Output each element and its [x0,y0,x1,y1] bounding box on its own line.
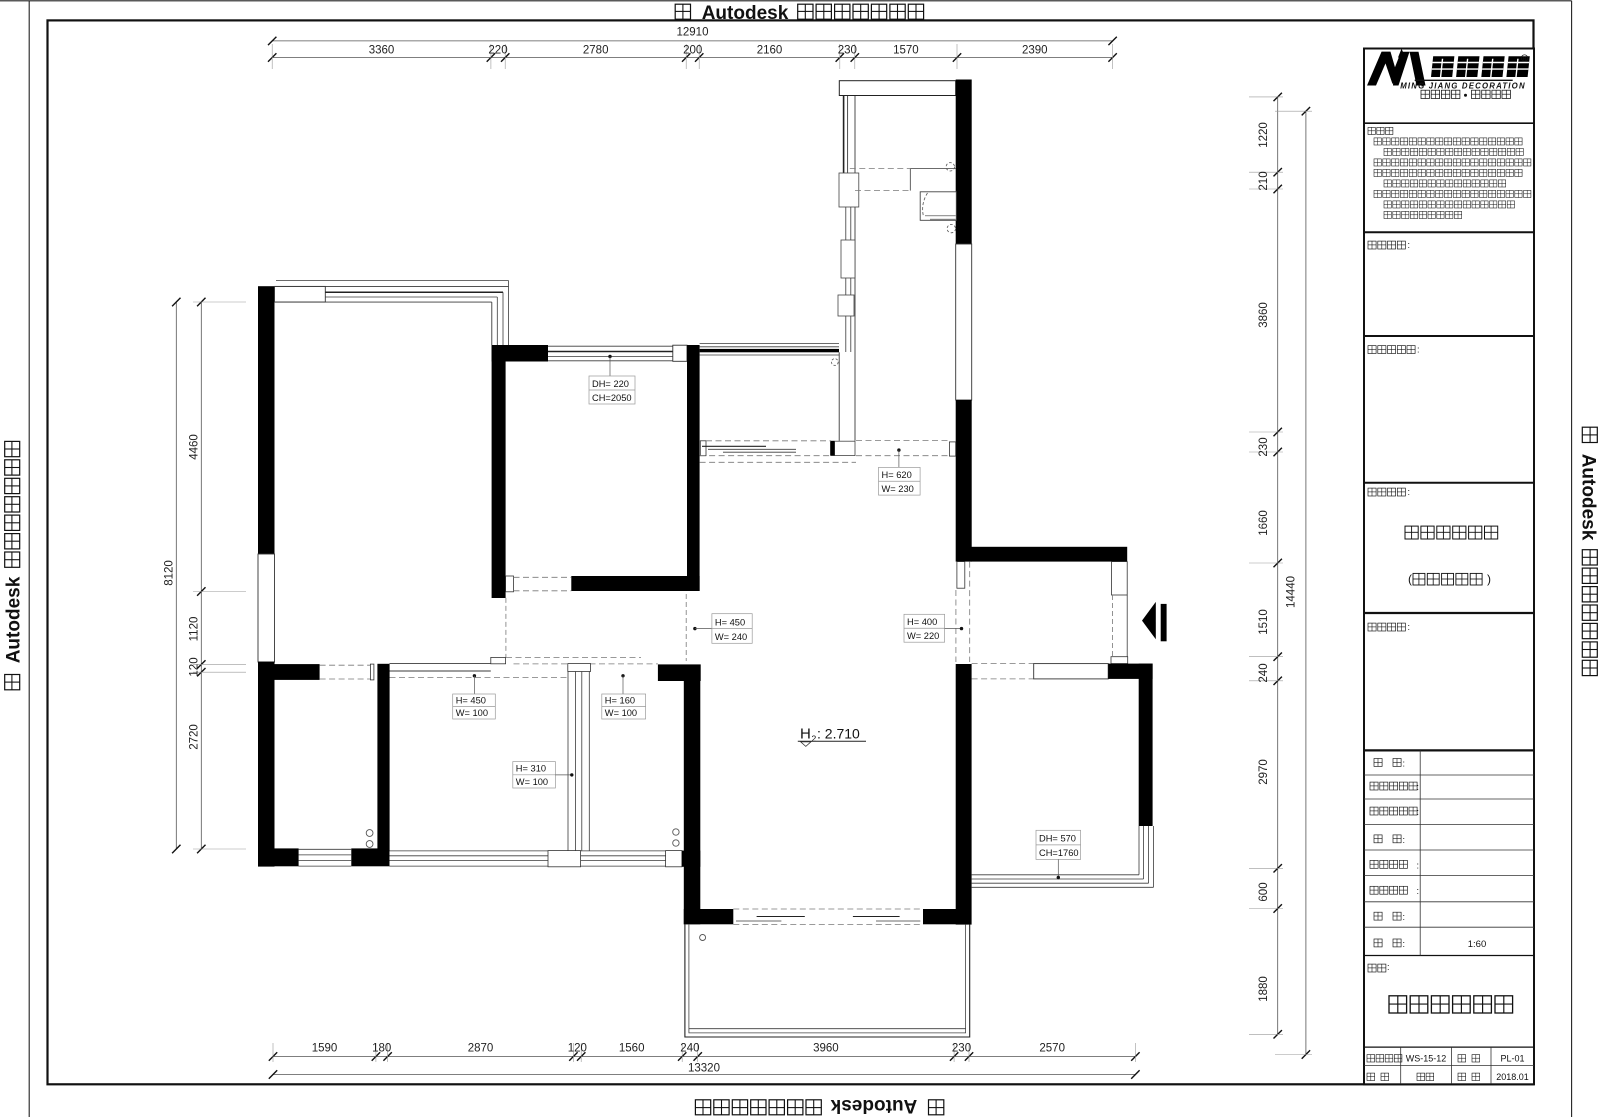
svg-text::: : [1417,807,1420,817]
svg-text:3860: 3860 [1258,302,1270,328]
svg-text:1220: 1220 [1258,122,1270,148]
svg-text:240: 240 [680,1043,699,1055]
svg-text:600: 600 [1258,882,1270,901]
svg-text:(: ( [1408,572,1412,586]
svg-text:13320: 13320 [688,1063,720,1075]
svg-text:240: 240 [1258,663,1270,682]
svg-text:Autodesk: Autodesk [1578,454,1599,541]
svg-text:2720: 2720 [189,724,201,750]
svg-text:4460: 4460 [189,434,201,460]
svg-text:220: 220 [488,45,507,57]
svg-text:W= 100: W= 100 [456,708,488,718]
svg-text:3360: 3360 [369,45,395,57]
svg-text::: : [1408,622,1411,632]
svg-text:1120: 1120 [189,617,201,642]
svg-text:120: 120 [189,657,201,676]
svg-text:H= 310: H= 310 [516,764,546,774]
svg-text:H= 450: H= 450 [456,695,486,705]
svg-text:1880: 1880 [1258,976,1270,1002]
svg-text:Autodesk: Autodesk [830,1095,917,1116]
svg-text:2: 2 [812,734,817,744]
svg-text:H= 450: H= 450 [715,617,745,627]
svg-text:1660: 1660 [1258,510,1270,536]
svg-text::: : [1403,912,1406,922]
svg-text:1510: 1510 [1258,609,1270,635]
svg-text:210: 210 [1258,171,1270,190]
svg-text:H= 620: H= 620 [882,470,912,480]
svg-text:DH= 570: DH= 570 [1039,834,1076,844]
svg-text:: 2.710: : 2.710 [817,726,860,742]
svg-text:12910: 12910 [677,27,709,39]
svg-text:1560: 1560 [619,1043,645,1055]
svg-text::: : [1417,782,1420,792]
svg-text::: : [1403,939,1406,949]
svg-text:1:60: 1:60 [1468,939,1487,950]
svg-text:W= 220: W= 220 [907,631,939,641]
svg-text:1590: 1590 [312,1043,338,1055]
svg-text:2018.01: 2018.01 [1496,1072,1529,1082]
svg-text:180: 180 [372,1043,391,1055]
svg-text:Autodesk: Autodesk [3,576,24,663]
svg-text:H= 400: H= 400 [907,617,937,627]
svg-text::: : [1387,962,1390,972]
svg-text:230: 230 [838,45,857,57]
svg-text::: : [1403,835,1406,845]
svg-text:230: 230 [1258,437,1270,456]
svg-text:120: 120 [568,1043,587,1055]
svg-text::: : [1417,345,1420,355]
svg-text:Autodesk: Autodesk [702,3,789,24]
svg-text:PL-01: PL-01 [1500,1054,1524,1064]
svg-text:14440: 14440 [1286,576,1298,608]
svg-text::: : [1408,487,1411,497]
svg-text:H= 160: H= 160 [605,695,635,705]
svg-text:CH=2050: CH=2050 [592,393,632,403]
svg-text:1570: 1570 [893,45,919,57]
svg-text:WS-15-12: WS-15-12 [1406,1054,1447,1064]
svg-text:2970: 2970 [1258,759,1270,785]
svg-text:230: 230 [952,1043,971,1055]
svg-text:CH=1760: CH=1760 [1039,848,1079,858]
svg-text:2390: 2390 [1022,45,1048,57]
svg-text:DH= 220: DH= 220 [592,379,629,389]
svg-text:3960: 3960 [813,1043,839,1055]
svg-text:2780: 2780 [583,45,609,57]
svg-text:W= 230: W= 230 [882,484,914,494]
svg-text:2570: 2570 [1039,1043,1065,1055]
svg-text:2870: 2870 [468,1043,494,1055]
svg-text::: : [1417,886,1420,896]
svg-text::: : [1417,860,1420,870]
svg-text:8120: 8120 [164,560,176,586]
svg-text:W= 100: W= 100 [516,777,548,787]
svg-text::: : [1403,758,1406,768]
svg-text::: : [1408,240,1411,250]
svg-text:MING JIANG DECORATION: MING JIANG DECORATION [1400,82,1526,91]
svg-text:H: H [800,726,811,743]
svg-text:2160: 2160 [757,45,783,57]
svg-text:): ) [1487,572,1491,586]
svg-text:R: R [1523,57,1527,63]
svg-text:W= 240: W= 240 [715,632,747,642]
svg-text:W= 100: W= 100 [605,708,637,718]
svg-text:200: 200 [683,45,702,57]
